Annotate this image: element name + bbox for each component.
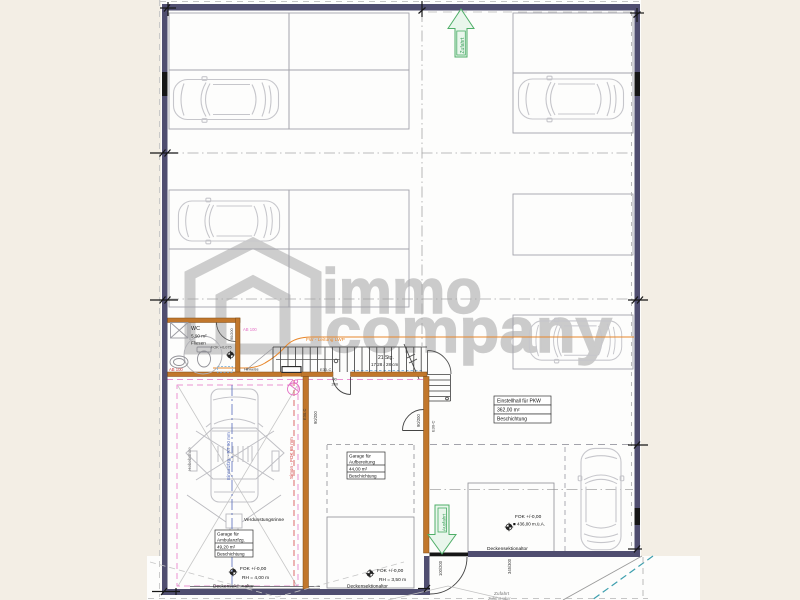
svg-text:44,00 m²: 44,00 m²: [349, 467, 368, 472]
svg-text:17,28 / 28 cm: 17,28 / 28 cm: [371, 362, 399, 367]
svg-text:Beschichtung: Beschichtung: [217, 552, 245, 557]
svg-text:Einstellhall für PKW: Einstellhall für PKW: [497, 399, 541, 405]
svg-text:362,00 m²: 362,00 m²: [497, 408, 520, 414]
svg-text:Ambulanzfzg.: Ambulanzfzg.: [217, 538, 245, 543]
svg-text:Zufahrt über: Zufahrt über: [488, 596, 511, 600]
svg-text:Deckensektionaltor: Deckensektionaltor: [347, 584, 388, 590]
svg-text:90/200: 90/200: [313, 411, 318, 424]
svg-text:90/200: 90/200: [416, 414, 421, 427]
svg-text:E30-C: E30-C: [302, 409, 307, 420]
svg-text:Garage für: Garage für: [217, 532, 239, 537]
svg-text:Hinweise: Hinweise: [244, 368, 259, 372]
svg-text:Zufahrt: Zufahrt: [460, 37, 466, 53]
svg-text:Beschichtung: Beschichtung: [349, 474, 377, 479]
svg-text:Aufbereitung: Aufbereitung: [349, 460, 375, 465]
svg-text:Garage für: Garage für: [349, 454, 371, 459]
svg-text:Deckensektionaltor: Deckensektionaltor: [487, 546, 528, 552]
svg-text:Hebebühne: Hebebühne: [187, 447, 192, 471]
svg-text:E30-C: E30-C: [431, 421, 436, 432]
svg-text:345/300: 345/300: [507, 558, 512, 574]
svg-text:FW - Leitung LWP: FW - Leitung LWP: [306, 337, 345, 343]
svg-text:E30-C: E30-C: [320, 367, 331, 372]
svg-text:Verdunstungsrinne: Verdunstungsrinne: [244, 517, 284, 523]
svg-text:200: 200: [332, 382, 339, 387]
svg-text:90/200: 90/200: [230, 328, 234, 340]
svg-text:21 Stg.: 21 Stg.: [378, 355, 394, 361]
svg-text:FOK +/-0,00: FOK +/-0,00: [240, 566, 267, 572]
svg-text:FOK +/-0,00: FOK +/-0,00: [515, 514, 542, 520]
svg-text:100/200: 100/200: [438, 560, 443, 576]
svg-text:Beschichtung: Beschichtung: [497, 417, 527, 423]
svg-text:FOK +0,075: FOK +0,075: [211, 346, 232, 350]
svg-text:Fliesen: Fliesen: [191, 341, 206, 346]
svg-text:5,90 m²: 5,90 m²: [191, 334, 207, 339]
svg-text:Einsatzfzg. - RT 90 mm: Einsatzfzg. - RT 90 mm: [226, 432, 231, 480]
svg-text:AB 100: AB 100: [243, 327, 257, 332]
svg-text:■ 436,00 m.ü.A.: ■ 436,00 m.ü.A.: [513, 522, 545, 527]
svg-text:Ausfahrt: Ausfahrt: [441, 513, 446, 531]
svg-text:Simon - FOK 65 mm: Simon - FOK 65 mm: [289, 437, 294, 479]
svg-text:WC: WC: [191, 326, 200, 332]
svg-text:RH = 4,00 m: RH = 4,00 m: [242, 575, 269, 581]
svg-text:RH = 3,50 m: RH = 3,50 m: [379, 577, 406, 583]
svg-text:FOK +/-0,00: FOK +/-0,00: [377, 568, 404, 574]
svg-text:49,20 m²: 49,20 m²: [217, 545, 236, 550]
svg-text:AB 100: AB 100: [169, 367, 183, 372]
